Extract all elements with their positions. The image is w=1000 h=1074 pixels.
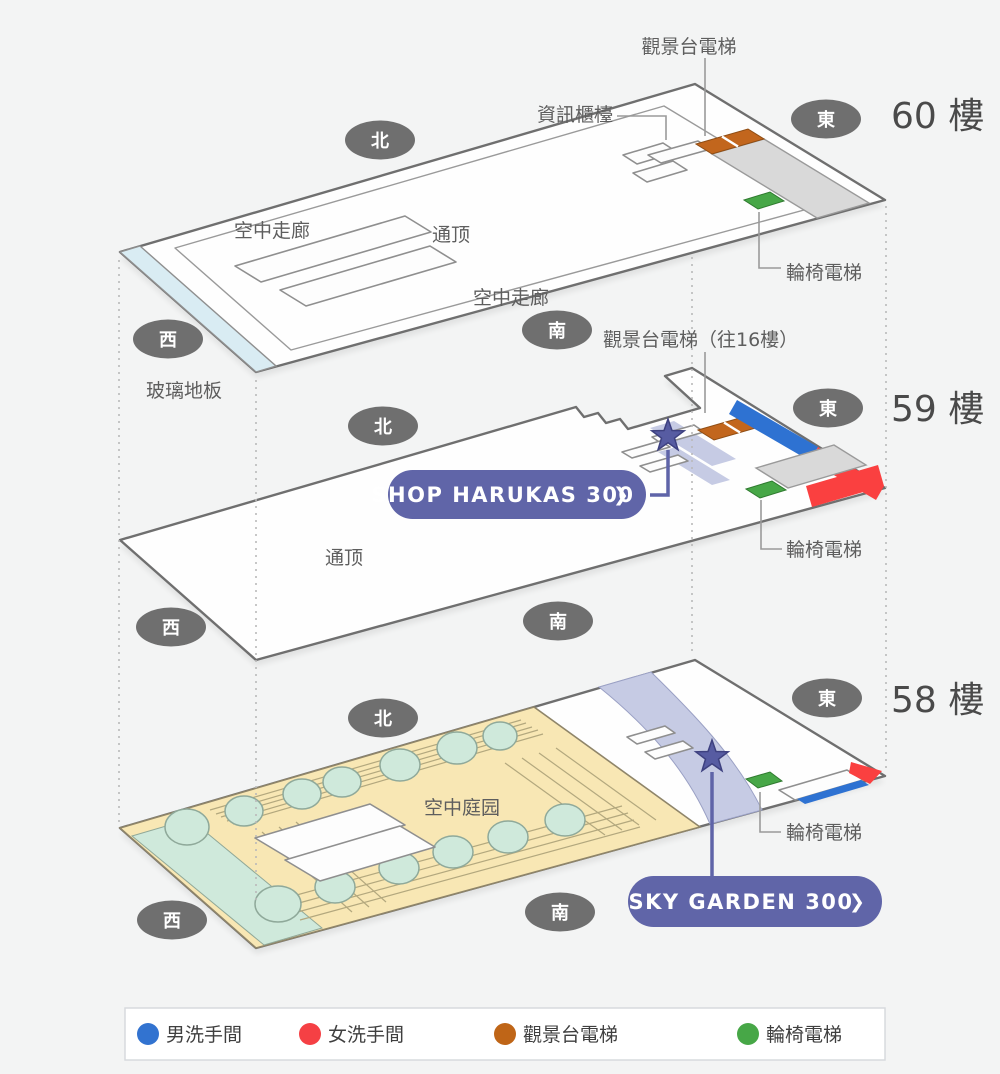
legend-label: 女洗手間 — [328, 1024, 404, 1046]
direction-badge-west-60: 西 — [133, 320, 203, 359]
direction-badge-south-60: 南 — [522, 311, 592, 350]
floor-59-title: 59 樓 — [891, 389, 984, 430]
svg-text:西: 西 — [159, 330, 177, 351]
svg-text:東: 東 — [818, 688, 836, 710]
legend-label: 輪椅電梯 — [766, 1024, 842, 1046]
direction-badge-north-58: 北 — [348, 699, 418, 738]
legend-label: 觀景台電梯 — [523, 1024, 618, 1046]
shop-harukas-300-button[interactable]: SHOP HARUKAS 300 ❯ — [371, 470, 646, 519]
obs-elevator-to16-label: 觀景台電梯（往16樓） — [603, 329, 798, 351]
direction-badge-north-60: 北 — [345, 121, 415, 160]
svg-text:SHOP HARUKAS 300: SHOP HARUKAS 300 — [371, 483, 634, 507]
harukas-floor-map: 觀景台電梯 資訊櫃檯 60 樓 北 東 西 南 空中走廊 通顶 空中走廊 玻璃地… — [0, 0, 1000, 1074]
womens-restroom-dot-icon — [299, 1023, 321, 1045]
legend-item-men: 男洗手間 — [137, 1023, 242, 1046]
direction-badge-south-58: 南 — [525, 893, 595, 932]
chevron-right-icon: ❯ — [613, 484, 629, 506]
svg-text:南: 南 — [549, 611, 567, 633]
direction-badge-east-60: 東 — [791, 100, 861, 139]
svg-text:東: 東 — [819, 398, 837, 420]
observatory-elevator-dot-icon — [494, 1023, 516, 1045]
svg-text:西: 西 — [162, 618, 180, 639]
legend-item-women: 女洗手間 — [299, 1023, 404, 1046]
direction-badge-west-59: 西 — [136, 608, 206, 647]
legend: 男洗手間 女洗手間 觀景台電梯 輪椅電梯 — [125, 1008, 885, 1060]
atrium-label: 通顶 — [432, 224, 470, 246]
svg-text:南: 南 — [551, 902, 569, 924]
atrium-label: 通顶 — [325, 547, 363, 569]
direction-badge-east-58: 東 — [792, 679, 862, 718]
wheelchair-elevator-dot-icon — [737, 1023, 759, 1045]
floor-58-title: 58 樓 — [891, 680, 984, 721]
info-counter-label: 資訊櫃檯 — [537, 104, 613, 126]
sky-corridor-label: 空中走廊 — [234, 220, 310, 242]
wheelchair-elevator-label: 輪椅電梯 — [786, 539, 862, 561]
floor-60-title: 60 樓 — [891, 96, 984, 137]
svg-text:東: 東 — [817, 109, 835, 131]
wheelchair-elevator-label: 輪椅電梯 — [786, 262, 862, 284]
sky-garden-label: 空中庭园 — [424, 797, 500, 819]
direction-badge-east-59: 東 — [793, 389, 863, 428]
chevron-right-icon: ❯ — [849, 891, 865, 913]
direction-badge-south-59: 南 — [523, 602, 593, 641]
legend-item-wheelchair: 輪椅電梯 — [737, 1023, 842, 1046]
direction-badge-west-58: 西 — [137, 901, 207, 940]
legend-label: 男洗手間 — [166, 1024, 242, 1046]
glass-floor-label: 玻璃地板 — [146, 380, 222, 402]
direction-badge-north-59: 北 — [348, 407, 418, 446]
svg-text:SKY GARDEN 300: SKY GARDEN 300 — [628, 890, 853, 914]
svg-text:北: 北 — [374, 417, 392, 438]
svg-text:北: 北 — [374, 709, 392, 730]
sky-garden-300-button[interactable]: SKY GARDEN 300 ❯ — [628, 876, 882, 927]
wheelchair-elevator-label: 輪椅電梯 — [786, 822, 862, 844]
mens-restroom-dot-icon — [137, 1023, 159, 1045]
svg-text:西: 西 — [163, 911, 181, 932]
obs-elevator-label: 觀景台電梯 — [641, 36, 736, 58]
sky-corridor-label: 空中走廊 — [473, 287, 549, 309]
svg-text:南: 南 — [548, 320, 566, 342]
svg-text:北: 北 — [371, 131, 389, 152]
